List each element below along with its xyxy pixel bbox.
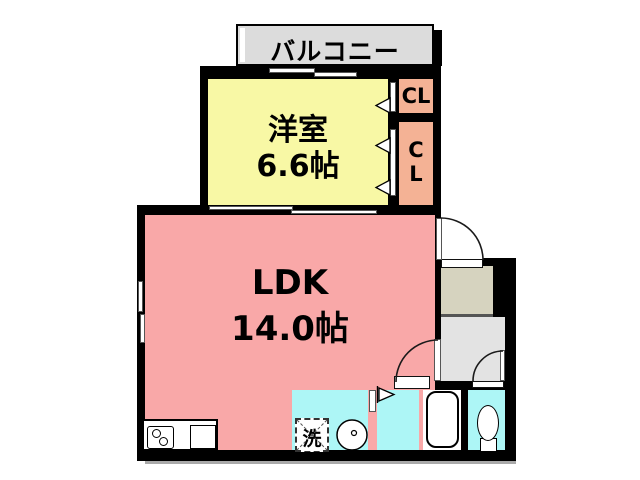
hall-door-leaf — [500, 350, 505, 381]
floor-plan: バルコニー 洋室 6.6帖 CL C L LDK 14.0帖 — [0, 0, 640, 480]
ldk-left-window-pane-b — [140, 314, 145, 343]
balcony-label: バルコニー — [238, 32, 432, 68]
ldk-washroom-threshold — [394, 376, 430, 389]
closet-bottom-label-c: C — [399, 138, 433, 162]
bedroom-ldk-slider-pane-a — [209, 206, 293, 210]
entry-door-leaf — [436, 218, 442, 260]
balcony-shadow — [434, 30, 442, 66]
laundry-label: 洗 — [302, 424, 322, 451]
bedroom-ldk-slider-pane-b — [291, 210, 377, 214]
closet-top-area: CL — [399, 79, 433, 113]
balcony-inner-highlight — [240, 28, 245, 62]
wall-right-top — [433, 66, 441, 218]
bedroom-top-window-pane-a — [269, 68, 315, 73]
entry-genkan-area — [441, 266, 493, 314]
closet-bottom-label-l: L — [399, 162, 433, 186]
wall-bedroom-left — [200, 66, 208, 215]
stove-burner-1 — [152, 429, 161, 438]
closet-bottom-area: C L — [399, 122, 433, 205]
wall-bath-toilet — [461, 381, 468, 461]
bedroom-size: 6.6帖 — [208, 141, 388, 185]
bathtub — [426, 391, 459, 448]
bathroom-floor-area — [377, 390, 419, 450]
hall-toilet-threshold — [472, 381, 504, 388]
ldk-left-window-pane-a — [138, 281, 143, 312]
hall-area — [441, 317, 505, 381]
bath-fold-door-strip — [369, 390, 376, 412]
ldk-label: LDK — [145, 263, 435, 303]
kitchen-sink — [190, 425, 216, 449]
entry-door-arc — [441, 218, 483, 260]
wall-bottom-shadow — [145, 461, 516, 464]
washing-machine: 洗 — [295, 418, 329, 452]
bedroom-top-window-pane-b — [314, 72, 357, 77]
closet-bottom-door-strip — [390, 129, 396, 196]
stove-burner-2 — [159, 437, 168, 446]
balcony-area: バルコニー — [236, 24, 434, 66]
closet-top-label: CL — [399, 84, 433, 108]
ldk-size: 14.0帖 — [145, 301, 435, 350]
closet-top-door-strip — [390, 82, 396, 112]
ldk-hall-door-strip — [434, 339, 441, 381]
bedroom-area: 洋室 6.6帖 — [208, 79, 388, 205]
toilet-bowl — [477, 405, 499, 441]
wall-right-bottom — [505, 325, 516, 461]
entry-door-threshold — [441, 259, 483, 268]
